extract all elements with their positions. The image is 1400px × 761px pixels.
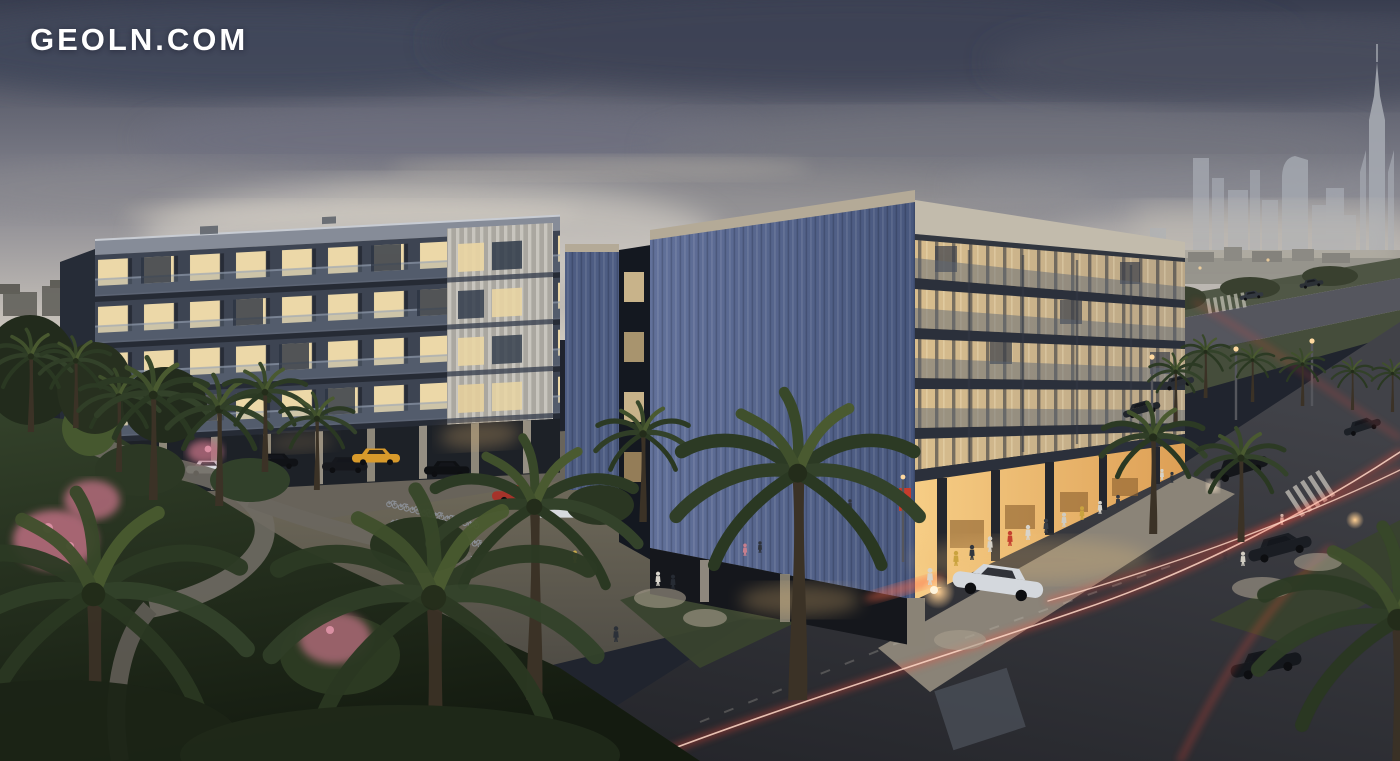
blue-facade-front xyxy=(650,190,915,646)
geoln-logo: GEOLN.COM xyxy=(30,22,248,58)
render-illustration xyxy=(0,0,1400,761)
headlight-glow xyxy=(921,575,955,609)
corner-column xyxy=(907,598,925,646)
white-clad-towers xyxy=(447,223,553,425)
architectural-render-scene: GEOLN.COM xyxy=(0,0,1400,761)
roof-units-2 xyxy=(322,216,336,224)
geoln-logo-text: GEOLN.COM xyxy=(30,22,248,57)
roof-units xyxy=(200,226,218,235)
